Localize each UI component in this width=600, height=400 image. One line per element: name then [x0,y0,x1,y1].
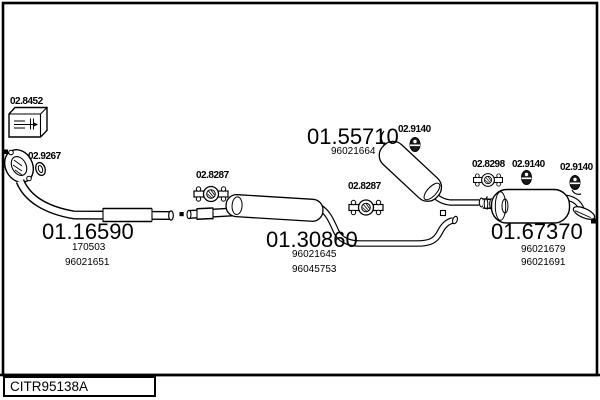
part-ref-clamp-mid[interactable]: 02.8287 [348,182,381,192]
part-alt1-rear-silencer: 96021679 [521,245,566,255]
part-alt1-front-pipe: 170503 [72,243,105,253]
part-alt1-mid-silencer: 96021664 [331,147,376,157]
part-ref-clamp-rear[interactable]: 02.8298 [472,160,505,170]
clamp-rear-icon [474,174,503,187]
clamp-front-icon [194,187,228,202]
exhaust-parts-diagram: 02.8452 02.9267 01.16590 170503 96021651… [0,0,600,400]
marker-square-right [591,219,596,224]
drawing-code: CITR95138A [10,379,88,394]
part-ref-mid-silencer[interactable]: 01.55710 [307,126,399,148]
part-ref-front-pipe[interactable]: 01.16590 [42,221,134,243]
hanger-mid-icon [410,138,420,152]
part-ref-hanger-rear1[interactable]: 02.9140 [512,160,545,170]
part-ref-seal-ring[interactable]: 02.9267 [28,152,61,162]
hanger-rear2-icon [570,176,580,190]
part-ref-centre-silencer[interactable]: 01.30860 [266,229,358,251]
part-alt2-rear-silencer: 96021691 [521,258,566,268]
part-ref-hanger-mid[interactable]: 02.9140 [398,125,431,135]
part-alt2-front-pipe: 96021651 [65,258,110,268]
hanger-rear1-icon [522,171,532,185]
part-ref-rear-silencer[interactable]: 01.67370 [491,221,583,243]
part-ref-hanger-rear2[interactable]: 02.9140 [560,163,593,173]
part-ref-clamp-front[interactable]: 02.8287 [196,171,229,181]
drawing-code-box: CITR95138A [3,376,156,397]
marker-square-frontpipe [180,212,184,216]
part-alt2-centre-silencer: 96045753 [292,265,337,275]
part-ref-gasket-kit[interactable]: 02.8452 [10,97,43,107]
gasket-kit-icon [9,108,47,138]
clamp-mid-icon [349,200,383,215]
marker-square-tailpipe [441,211,446,216]
part-alt1-centre-silencer: 96021645 [292,250,337,260]
exhaust-diagram-artwork [0,0,600,400]
